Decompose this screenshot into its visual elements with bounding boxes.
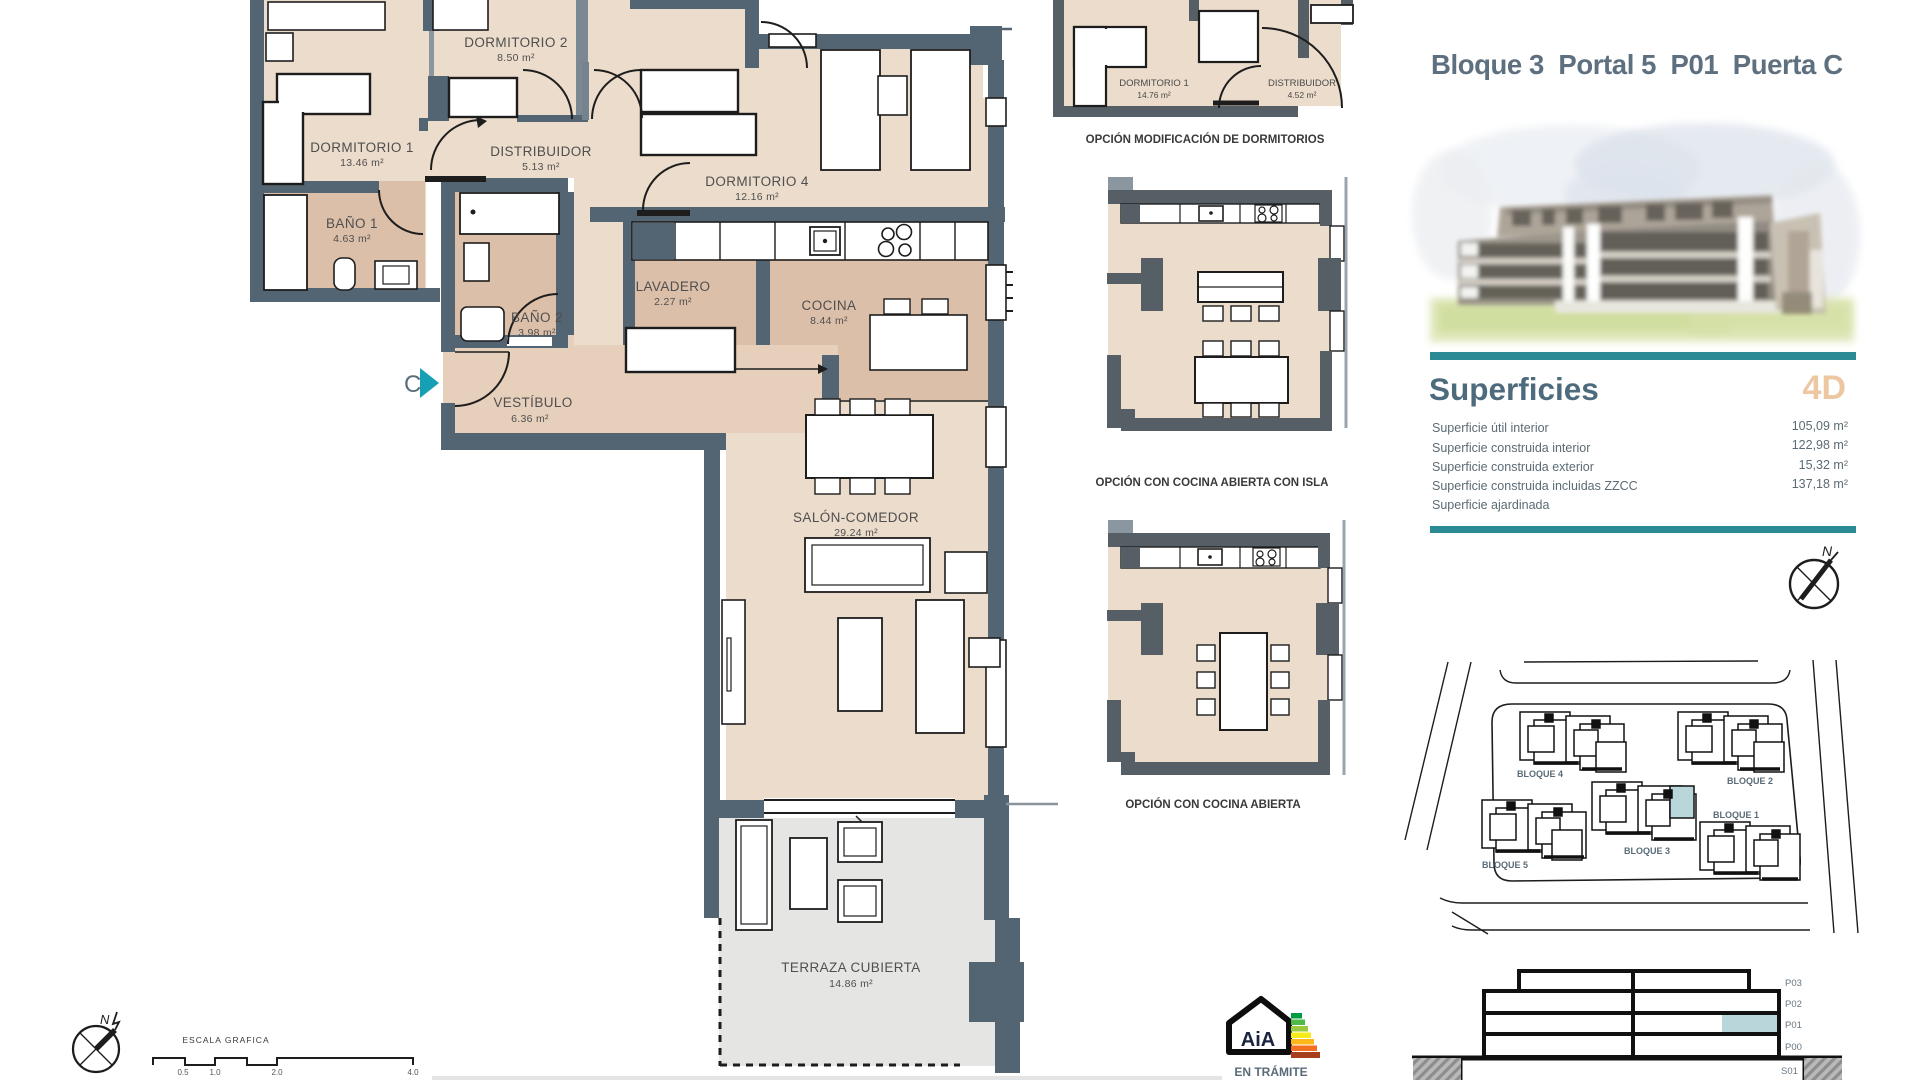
svg-text:COCINA: COCINA — [802, 298, 857, 313]
svg-text:P03: P03 — [1785, 978, 1802, 989]
svg-text:BLOQUE 2: BLOQUE 2 — [1727, 776, 1773, 786]
svg-text:BLOQUE 5: BLOQUE 5 — [1482, 860, 1528, 870]
svg-text:14.76 m²: 14.76 m² — [1137, 90, 1171, 100]
svg-text:4.52 m²: 4.52 m² — [1288, 90, 1317, 100]
svg-text:EN TRÁMITE: EN TRÁMITE — [1234, 1064, 1307, 1079]
svg-text:105,09 m²: 105,09 m² — [1792, 419, 1848, 433]
svg-text:DORMITORIO 4: DORMITORIO 4 — [705, 174, 809, 189]
svg-text:S01: S01 — [1781, 1066, 1798, 1077]
svg-text:TERRAZA CUBIERTA: TERRAZA CUBIERTA — [781, 960, 920, 975]
svg-text:137,18 m²: 137,18 m² — [1792, 477, 1848, 491]
svg-text:BLOQUE 1: BLOQUE 1 — [1713, 810, 1759, 820]
svg-text:SALÓN-COMEDOR: SALÓN-COMEDOR — [793, 510, 919, 525]
svg-text:4.0: 4.0 — [407, 1068, 419, 1077]
svg-text:LAVADERO: LAVADERO — [636, 279, 711, 294]
svg-text:BLOQUE 4: BLOQUE 4 — [1517, 769, 1563, 779]
svg-text:Superficie ajardinada: Superficie ajardinada — [1432, 498, 1549, 512]
svg-text:OPCIÓN CON COCINA ABIERTA CON: OPCIÓN CON COCINA ABIERTA CON ISLA — [1096, 476, 1329, 489]
svg-text:P02: P02 — [1785, 999, 1802, 1010]
svg-text:1.0: 1.0 — [209, 1068, 221, 1077]
svg-text:Superficie útil interior: Superficie útil interior — [1432, 421, 1549, 435]
svg-text:12.16 m²: 12.16 m² — [735, 191, 779, 203]
svg-text:BAÑO 2: BAÑO 2 — [511, 310, 563, 325]
svg-text:2.0: 2.0 — [271, 1068, 283, 1077]
svg-text:OPCIÓN CON COCINA ABIERTA: OPCIÓN CON COCINA ABIERTA — [1125, 798, 1300, 811]
svg-text:BAÑO 1: BAÑO 1 — [326, 216, 378, 231]
svg-text:DORMITORIO 1: DORMITORIO 1 — [1119, 78, 1189, 89]
svg-text:P00: P00 — [1785, 1042, 1802, 1053]
svg-text:DORMITORIO 1: DORMITORIO 1 — [310, 140, 414, 155]
svg-text:BLOQUE 3: BLOQUE 3 — [1624, 846, 1670, 856]
svg-text:DISTRIBUIDOR: DISTRIBUIDOR — [1268, 78, 1336, 89]
svg-text:N: N — [1822, 543, 1833, 559]
svg-text:DISTRIBUIDOR: DISTRIBUIDOR — [490, 144, 592, 159]
svg-text:ESCALA GRAFICA: ESCALA GRAFICA — [182, 1035, 269, 1045]
svg-text:2.27 m²: 2.27 m² — [654, 296, 692, 308]
svg-text:5.13 m²: 5.13 m² — [522, 161, 560, 173]
svg-text:8.44 m²: 8.44 m² — [810, 315, 848, 327]
svg-text:Superficie construida incluida: Superficie construida incluidas ZZCC — [1432, 479, 1638, 493]
svg-text:DORMITORIO 2: DORMITORIO 2 — [464, 35, 568, 50]
svg-text:3.98 m²: 3.98 m² — [518, 327, 556, 339]
svg-text:VESTÍBULO: VESTÍBULO — [493, 395, 572, 410]
svg-text:13.46 m²: 13.46 m² — [340, 157, 384, 169]
svg-text:N: N — [100, 1012, 110, 1027]
svg-text:14.86 m²: 14.86 m² — [829, 978, 873, 990]
svg-text:Superficie construida interior: Superficie construida interior — [1432, 441, 1590, 455]
svg-text:0.5: 0.5 — [177, 1068, 189, 1077]
svg-text:C: C — [404, 371, 421, 398]
svg-text:Superficies: Superficies — [1429, 371, 1599, 407]
svg-text:Superficie construida exterior: Superficie construida exterior — [1432, 460, 1594, 474]
svg-text:Bloque 3 Portal 5 P01 Puert: Bloque 3 Portal 5 P01 Puerta C — [1431, 49, 1843, 80]
svg-text:P01: P01 — [1785, 1020, 1802, 1031]
svg-text:AiA: AiA — [1241, 1029, 1275, 1051]
svg-text:OPCIÓN MODIFICACIÓN DE DORMITO: OPCIÓN MODIFICACIÓN DE DORMITORIOS — [1086, 133, 1325, 146]
svg-text:4.63 m²: 4.63 m² — [333, 233, 371, 245]
svg-text:122,98 m²: 122,98 m² — [1792, 438, 1848, 452]
svg-text:6.36 m²: 6.36 m² — [511, 413, 549, 425]
svg-text:15,32 m²: 15,32 m² — [1799, 458, 1848, 472]
svg-text:29.24 m²: 29.24 m² — [834, 527, 878, 539]
svg-text:8.50 m²: 8.50 m² — [497, 52, 535, 64]
svg-text:4D: 4D — [1803, 369, 1846, 407]
